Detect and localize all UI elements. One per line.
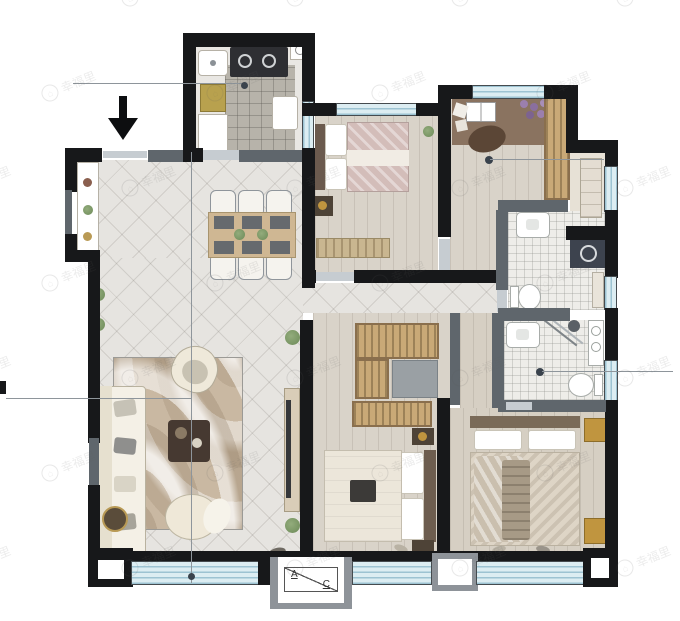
wall-gray <box>492 313 504 408</box>
side-table <box>102 506 128 532</box>
sink-basin <box>526 219 539 230</box>
toilet-bowl <box>518 284 541 310</box>
wall-gray <box>498 200 568 212</box>
sofa-pillow <box>113 399 137 418</box>
closet-shelf <box>580 158 602 218</box>
pillar-core <box>98 560 124 579</box>
wall <box>437 398 450 553</box>
house-circle-icon: ⌂ <box>39 82 61 104</box>
placemat <box>270 216 290 229</box>
watermark: ⌂幸福里 <box>0 162 13 199</box>
wardrobe <box>352 401 432 427</box>
table-plant-icon <box>257 229 268 240</box>
bathroom-leader-dot <box>536 368 544 376</box>
bed-pillow <box>400 452 424 494</box>
wall <box>88 258 100 443</box>
house-circle-icon: ⌂ <box>614 0 636 9</box>
dining-chair <box>266 256 292 280</box>
toilet-bowl <box>568 373 594 397</box>
table-plant-icon <box>234 229 245 240</box>
wall <box>605 308 618 362</box>
wall-gray <box>239 150 302 162</box>
arrow-shaft <box>119 96 127 120</box>
wall <box>65 148 77 192</box>
dining-chair <box>266 190 292 214</box>
dining-chair <box>210 256 236 280</box>
bed-pillow <box>528 430 576 450</box>
wall <box>566 226 612 240</box>
wall <box>183 148 203 162</box>
window <box>336 103 418 116</box>
nightstand-gold <box>584 418 606 442</box>
wall-gray <box>148 150 183 162</box>
pillar-core <box>591 558 609 578</box>
watermark: ⌂幸福里 <box>449 0 508 9</box>
window <box>604 276 617 310</box>
window <box>604 166 618 212</box>
wall <box>183 33 315 47</box>
bed-pillow <box>325 124 347 156</box>
house-circle-icon: ⌂ <box>369 82 391 104</box>
papers <box>455 119 468 132</box>
console-decor <box>83 178 92 187</box>
watermark-text: 幸福里 <box>633 352 673 381</box>
watermark: ⌂幸福里 <box>39 67 98 104</box>
wall <box>438 85 474 99</box>
lamp-icon <box>318 201 327 210</box>
ac-label-a: A <box>291 569 298 580</box>
kitchen-door-opening <box>203 150 239 160</box>
arrow-head <box>108 118 138 140</box>
watermark-text: 幸福里 <box>0 0 13 1</box>
watermark-text: 幸福里 <box>303 0 343 1</box>
faucet-icon <box>210 60 216 66</box>
closet-vanity <box>392 360 438 398</box>
vertical-reference-line <box>191 152 192 583</box>
bed-tray-decor <box>350 480 376 502</box>
wall-gray <box>496 210 508 290</box>
window <box>604 360 618 402</box>
watermark-text: 幸福里 <box>633 0 673 1</box>
wall <box>183 33 196 153</box>
dining-chair <box>210 190 236 214</box>
wardrobe <box>355 323 439 359</box>
bed-headboard <box>424 450 436 542</box>
watermark: ⌂幸福里 <box>119 0 178 9</box>
floor-plant-icon <box>285 330 300 345</box>
watermark-text: 幸福里 <box>633 162 673 191</box>
wall <box>566 85 578 145</box>
watermark: ⌂幸福里 <box>284 0 343 9</box>
wall-gray <box>89 438 99 488</box>
sofa-pillow <box>113 437 137 455</box>
ac-label-box: A C <box>284 567 338 592</box>
watermark-text: 幸福里 <box>468 0 508 1</box>
kitchen-leader-line <box>73 83 244 84</box>
watermark: ⌂幸福里 <box>614 0 673 9</box>
watermark-text: 幸福里 <box>0 542 13 571</box>
wall-gray <box>450 313 460 405</box>
bed-pillow <box>474 430 522 450</box>
bed-pillow <box>400 498 424 540</box>
wall <box>302 270 316 283</box>
lamp-icon <box>418 432 427 441</box>
shower-head-icon <box>568 320 580 332</box>
console-plant-icon <box>83 205 93 215</box>
wall <box>302 103 338 116</box>
burner-icon <box>238 54 252 68</box>
door-opening <box>316 272 354 281</box>
ac-label-c: C <box>323 579 330 590</box>
house-circle-icon: ⌂ <box>39 272 61 294</box>
watermark: ⌂幸福里 <box>614 162 673 199</box>
wall <box>302 148 315 288</box>
wall <box>438 85 451 237</box>
floor-plant-icon <box>285 518 300 533</box>
kitchen-leader-dot <box>241 82 248 89</box>
bed-headboard <box>470 416 580 428</box>
placemat <box>214 216 234 229</box>
wall-gray <box>498 308 570 321</box>
sofa-pillow <box>114 476 136 492</box>
entrance-arrow-icon <box>108 96 138 144</box>
dining-chair <box>238 190 264 214</box>
decor-plant-icon <box>423 126 434 137</box>
window <box>352 561 432 585</box>
placemat <box>242 241 262 254</box>
nightstand-gold <box>584 518 606 544</box>
watermark: ⌂幸福里 <box>0 542 13 579</box>
watermark-text: 幸福里 <box>388 67 428 96</box>
door-opening <box>506 402 532 410</box>
house-circle-icon: ⌂ <box>449 0 471 9</box>
dining-chair <box>238 256 264 280</box>
study-leader-line <box>490 159 604 160</box>
watermark: ⌂幸福里 <box>614 542 673 579</box>
equipment-platform <box>432 553 478 591</box>
bed-throw <box>347 150 409 166</box>
bed-runner <box>502 460 530 540</box>
watermark-text: 幸福里 <box>58 67 98 96</box>
bathroom-leader-line <box>542 371 673 372</box>
house-circle-icon: ⌂ <box>284 0 306 9</box>
sofa-leader-tick <box>0 381 6 394</box>
kitchen-cabinet-gold <box>200 84 226 112</box>
console-decor <box>83 232 92 241</box>
wall <box>605 210 618 278</box>
placemat <box>270 241 290 254</box>
watermark: ⌂幸福里 <box>369 67 428 104</box>
watermark-text: 幸福里 <box>0 162 13 191</box>
window <box>472 85 546 99</box>
wall <box>605 400 618 552</box>
wall <box>354 270 450 283</box>
study-leader-dot <box>485 156 493 164</box>
basin-icon <box>591 326 601 336</box>
watermark-text: 幸福里 <box>138 0 178 1</box>
coffee-table-decor <box>192 438 202 448</box>
entry-door-opening <box>103 151 147 158</box>
washer-door-icon <box>580 245 597 262</box>
vertical-line-dot <box>188 573 195 580</box>
master-entry-floor <box>460 313 492 408</box>
coffee-table <box>168 420 210 462</box>
hallway-floor <box>303 283 500 313</box>
toilet-tank <box>594 374 603 396</box>
placemat <box>242 216 262 229</box>
tv-icon <box>286 400 291 498</box>
fridge <box>272 96 298 130</box>
wardrobe <box>355 359 389 399</box>
wall <box>438 270 502 283</box>
bedroom-bench <box>316 238 390 258</box>
wall <box>88 485 100 555</box>
open-book-icon <box>466 102 496 122</box>
wall <box>300 320 313 553</box>
sofa-leader-line <box>6 398 192 399</box>
basin-icon <box>591 342 601 352</box>
watermark-text: 幸福里 <box>0 352 13 381</box>
window <box>131 561 260 585</box>
house-circle-icon: ⌂ <box>39 462 61 484</box>
house-circle-icon: ⌂ <box>119 0 141 9</box>
door-opening <box>439 239 450 271</box>
watermark: ⌂幸福里 <box>0 0 13 9</box>
watermark-text: 幸福里 <box>633 542 673 571</box>
flowers-decor <box>520 100 528 108</box>
floor-plan: A C ⌂幸福里⌂幸福里⌂幸福里⌂幸福里⌂幸福里⌂幸福里⌂幸福里⌂幸福里⌂幸福里… <box>0 0 680 621</box>
sink-basin <box>516 329 529 340</box>
bed-pillow <box>325 158 347 190</box>
coffee-table-decor <box>175 427 187 439</box>
placemat <box>214 241 234 254</box>
bath-shelf <box>592 272 604 308</box>
wall <box>302 33 315 103</box>
bed-headboard <box>315 124 325 190</box>
burner-icon <box>262 54 276 68</box>
window <box>476 561 584 585</box>
wall-gray <box>65 190 72 236</box>
